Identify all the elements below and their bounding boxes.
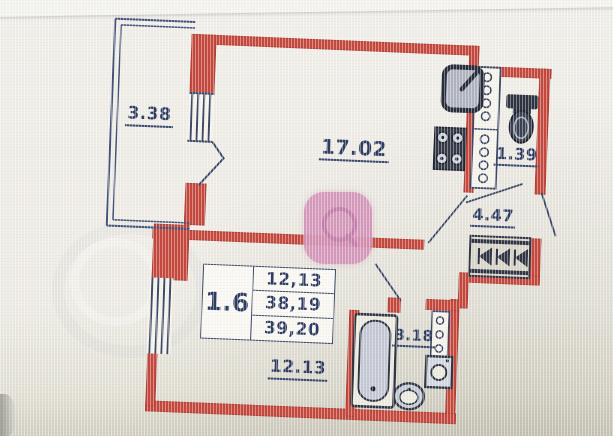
- living-area-value: 12,13: [253, 267, 335, 295]
- balcony-door-swing: [198, 141, 224, 186]
- living-room-area-label: 17.02: [319, 136, 390, 163]
- bathroom-area-label: 3.18: [392, 328, 436, 349]
- washbasin-icon: [393, 383, 424, 410]
- bathroom-door-swing: [374, 264, 402, 301]
- hallway-area-label: 4.47: [470, 207, 516, 229]
- toilet-area-label: 1.39: [494, 146, 540, 168]
- apartment-area-value: 38,19: [252, 291, 334, 319]
- bedroom-area-label: 12.13: [267, 358, 328, 381]
- bathtub-icon: [351, 314, 397, 408]
- stove-icon: [433, 127, 466, 170]
- kitchen-sink-icon: [443, 67, 483, 112]
- washing-machine-icon: [425, 356, 452, 388]
- living-room-door-swing: [428, 194, 467, 245]
- balcony-window-hatch: [187, 92, 214, 143]
- floorplan-photo: 3.38 17.02 1.39 4.47 3.18 12.13 1.6 12,1…: [0, 0, 613, 436]
- area-stamp-table: 1.6 12,13 38,19 39,20: [200, 264, 336, 345]
- balcony-area-label: 3.38: [125, 105, 174, 128]
- entrance-door-swing: [540, 193, 558, 237]
- avito-watermark: [304, 192, 372, 264]
- wardrobe-icon: [469, 236, 531, 278]
- bedroom-window-hatch: [146, 277, 173, 354]
- plan-code: 1.6: [201, 265, 254, 340]
- toilet-icon: [505, 94, 539, 143]
- total-area-value: 39,20: [251, 315, 333, 343]
